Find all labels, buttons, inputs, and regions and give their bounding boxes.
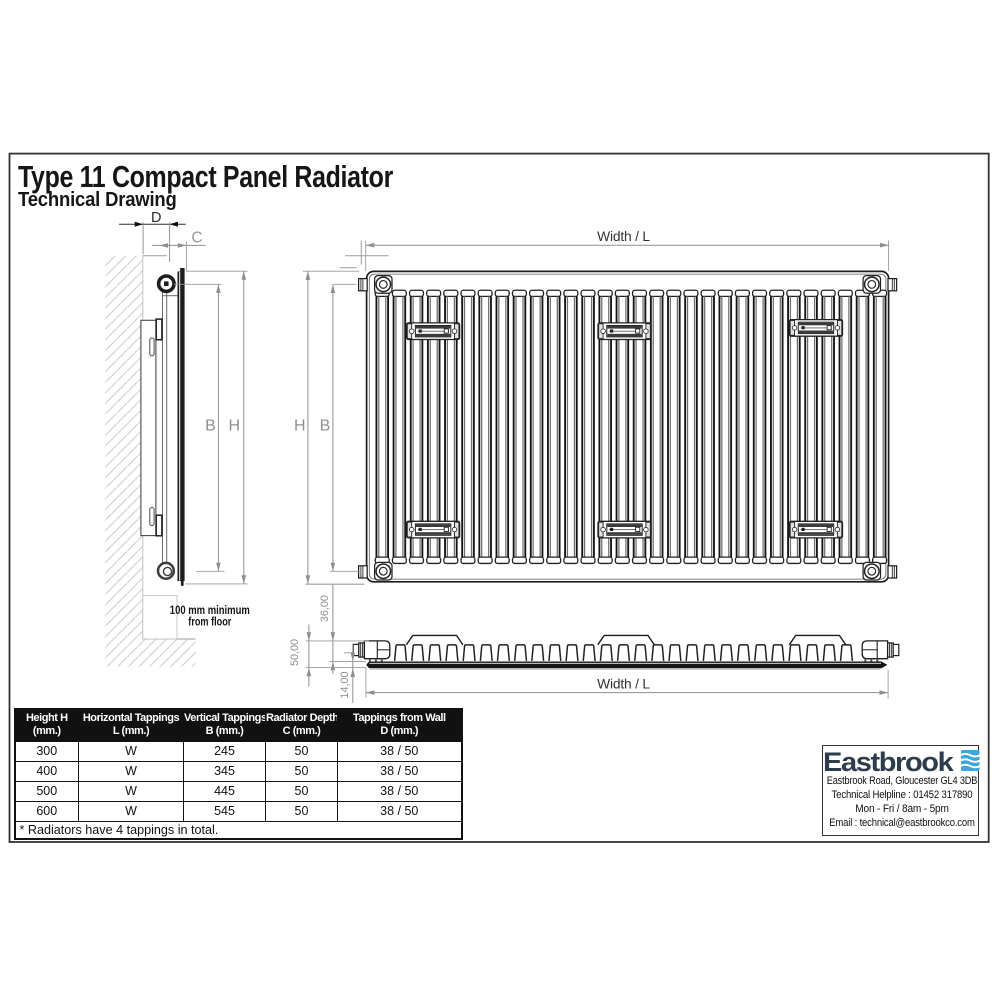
svg-text:H: H (229, 418, 241, 435)
svg-text:from floor: from floor (188, 615, 231, 629)
svg-text:36,00: 36,00 (319, 595, 331, 622)
svg-text:B: B (205, 418, 216, 435)
svg-text:Width / L: Width / L (597, 677, 650, 692)
svg-text:50,00: 50,00 (289, 639, 301, 666)
svg-text:H: H (294, 418, 306, 435)
svg-text:Width / L: Width / L (597, 229, 650, 244)
svg-text:B: B (320, 418, 331, 435)
svg-text:C: C (191, 230, 202, 247)
svg-text:14,00: 14,00 (339, 671, 351, 698)
svg-text:D: D (151, 210, 161, 226)
